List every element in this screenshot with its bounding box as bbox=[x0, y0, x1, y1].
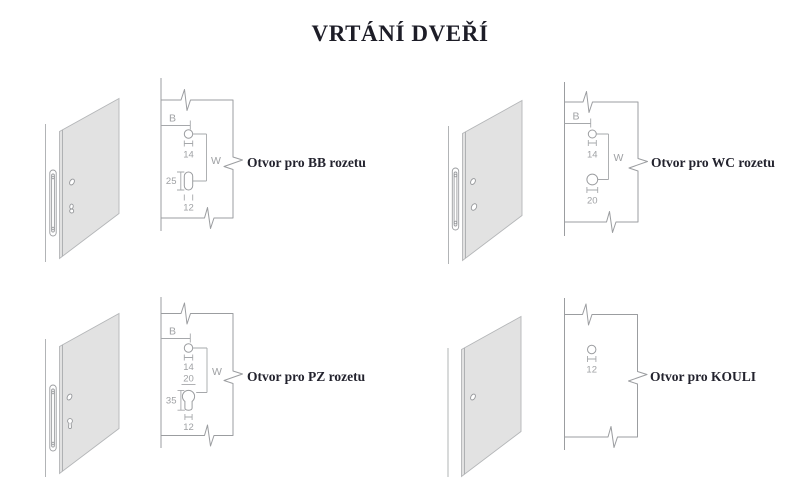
bb-dim-14: 14 bbox=[183, 141, 194, 161]
kouli-door-illustration bbox=[448, 317, 521, 478]
bb-panel-outline-with-breaks bbox=[161, 90, 243, 229]
pz-dim-35: 35 bbox=[166, 390, 185, 410]
wc-dim-20-label: 20 bbox=[587, 196, 598, 207]
bb-top-hole bbox=[184, 130, 192, 138]
bb-detail-drawing: B 14 W 25 12 bbox=[161, 78, 243, 231]
callout-kouli: Otvor pro KOULI bbox=[650, 369, 756, 385]
pz-lock-faceplate bbox=[50, 385, 56, 451]
diagram-canvas: B 14 W 25 12 bbox=[0, 0, 800, 499]
bb-dim-w-label: W bbox=[211, 155, 221, 167]
bb-lock-faceplate bbox=[50, 170, 56, 236]
wc-door-illustration bbox=[449, 101, 523, 265]
bb-dim-w: W bbox=[193, 134, 221, 181]
callout-bb-rozeta: Otvor pro BB rozetu bbox=[247, 155, 366, 171]
bb-dim-12: 12 bbox=[183, 195, 194, 214]
wc-bottom-hole bbox=[587, 174, 598, 185]
pz-dim-20: 20 bbox=[182, 374, 196, 385]
pz-detail-drawing: B 14 20 W 35 12 bbox=[161, 297, 243, 448]
pz-dim-b: B bbox=[161, 326, 190, 343]
callout-pz-rozeta: Otvor pro PZ rozetu bbox=[247, 369, 365, 385]
bb-dim-25-label: 25 bbox=[166, 176, 177, 187]
bb-door-illustration bbox=[46, 99, 120, 263]
pz-dim-w: W bbox=[193, 348, 222, 393]
pz-dim-14-label: 14 bbox=[183, 362, 194, 373]
bb-dim-b-label: B bbox=[169, 113, 176, 125]
pz-door-illustration bbox=[46, 314, 120, 478]
callout-wc-rozeta: Otvor pro WC rozetu bbox=[651, 155, 775, 171]
kouli-dim-12: 12 bbox=[586, 356, 597, 376]
pz-top-hole bbox=[184, 344, 192, 352]
kouli-panel-outline-with-breaks bbox=[565, 304, 648, 448]
pz-dim-20-label: 20 bbox=[183, 374, 194, 385]
wc-dim-b-label: B bbox=[572, 111, 579, 123]
bb-dim-25: 25 bbox=[166, 172, 184, 190]
kouli-dim-12-label: 12 bbox=[586, 365, 597, 376]
wc-dim-20: 20 bbox=[587, 187, 598, 207]
bb-dim-b: B bbox=[161, 113, 190, 130]
pz-dim-35-label: 35 bbox=[166, 396, 177, 407]
wc-dim-w-label: W bbox=[614, 152, 624, 164]
bb-dim-12-label: 12 bbox=[183, 203, 194, 214]
bb-dim-14-label: 14 bbox=[183, 150, 194, 161]
kouli-detail-drawing: 12 bbox=[565, 298, 648, 450]
bb-door-panel bbox=[60, 99, 120, 259]
wc-dim-b: B bbox=[565, 111, 591, 128]
pz-dim-14: 14 bbox=[183, 355, 194, 374]
bb-slot-hole bbox=[184, 172, 192, 190]
kouli-hole bbox=[588, 345, 596, 353]
pz-door-panel bbox=[60, 314, 120, 474]
wc-dim-14: 14 bbox=[587, 140, 598, 161]
pz-dim-12: 12 bbox=[183, 414, 194, 433]
bb-key-hole bbox=[69, 204, 73, 213]
pz-panel-outline-with-breaks bbox=[161, 303, 243, 446]
wc-lock-faceplate bbox=[452, 168, 458, 230]
pz-dim-w-label: W bbox=[212, 366, 222, 378]
wc-detail-drawing: B 14 W 20 bbox=[565, 82, 648, 236]
pz-dim-12-label: 12 bbox=[183, 422, 194, 433]
wc-dim-w: W bbox=[597, 134, 624, 180]
pz-dim-b-label: B bbox=[169, 326, 176, 338]
wc-dim-14-label: 14 bbox=[587, 150, 598, 161]
wc-top-hole bbox=[588, 130, 596, 138]
pz-cylinder-hole bbox=[182, 390, 194, 410]
